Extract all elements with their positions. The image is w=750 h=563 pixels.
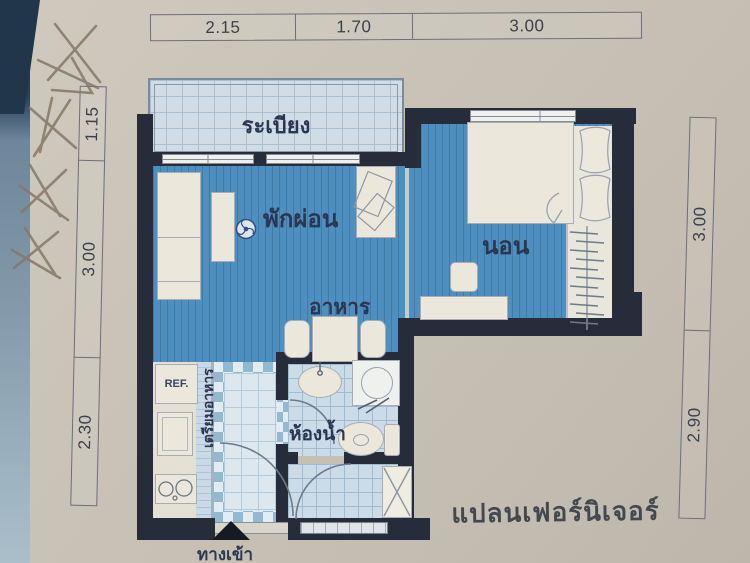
toilet-seat-inner	[353, 434, 369, 446]
nightstand	[450, 262, 478, 292]
window-living-2	[266, 154, 360, 164]
sofa-armrest-line	[158, 281, 200, 282]
floor-plan-photo: 2.15 1.70 3.00 1.15 3.00 2.30 3.00 2.90	[0, 0, 750, 563]
dimension-right-2: 2.90	[679, 330, 709, 518]
dimension-right-1: 3.00	[685, 118, 716, 331]
dimension-left-3: 2.30	[71, 357, 99, 505]
partition-living-bedroom	[405, 168, 409, 318]
tv-cabinet	[211, 192, 235, 262]
refrigerator: REF.	[155, 364, 198, 404]
dresser	[420, 296, 508, 320]
living-room-label: พักผ่อน	[263, 199, 338, 238]
bathroom-sink	[298, 366, 342, 398]
bathroom-label: ห้องน้ำ	[289, 419, 346, 449]
wall-bedroom-left-stub	[405, 108, 421, 168]
entry-hall-inner-tiles	[224, 373, 277, 511]
dining-chair-left	[284, 320, 310, 358]
dimension-bar-left: 1.15 3.00 2.30	[70, 86, 107, 507]
dimension-top-3: 3.00	[412, 13, 641, 39]
service-shaft	[382, 466, 412, 518]
wall-bathroom-left-upper	[276, 352, 288, 400]
desk	[356, 166, 396, 238]
entrance-label: ทางเข้า	[197, 541, 253, 563]
kitchen-prep-label: เตรียมอาหาร	[198, 368, 220, 448]
window-bottom	[300, 522, 388, 534]
entrance-arrow-icon	[212, 521, 250, 540]
dimension-left-2: 3.00	[75, 160, 104, 358]
kitchen-cabinet-inner	[162, 417, 188, 451]
toilet-tank	[384, 424, 400, 456]
dimension-top-2: 1.70	[295, 14, 412, 40]
sofa-cushion-line	[158, 237, 200, 238]
bedroom-label: นอน	[482, 226, 529, 265]
plan-title: แปลนเฟอร์นิเจอร์	[448, 491, 664, 535]
wall-bottom-left	[137, 518, 215, 540]
bed	[467, 122, 574, 224]
shower-tray	[352, 360, 400, 406]
dimension-bar-right: 3.00 2.90	[678, 117, 716, 520]
dimension-left-1: 1.15	[79, 87, 106, 161]
sofa	[157, 172, 201, 300]
balcony-label: ระเบียง	[148, 108, 404, 143]
dining-label: อาหาร	[309, 291, 370, 324]
kitchen-cabinet	[157, 412, 193, 456]
refrigerator-label: REF.	[165, 378, 189, 390]
dimension-top-1: 2.15	[151, 15, 295, 41]
wall-left	[137, 114, 153, 540]
window-living-1	[162, 154, 254, 164]
dimension-bar-top: 2.15 1.70 3.00	[150, 12, 642, 42]
dining-chair-right	[360, 320, 386, 358]
photo-edge-corner-dark	[0, 0, 40, 114]
wall-bedroom-bottom	[402, 318, 634, 336]
shower-drain-circle	[361, 367, 393, 399]
stove-sink-counter	[155, 474, 197, 504]
window-bedroom	[470, 110, 576, 122]
wall-bathroom-bottom-left	[276, 452, 298, 464]
